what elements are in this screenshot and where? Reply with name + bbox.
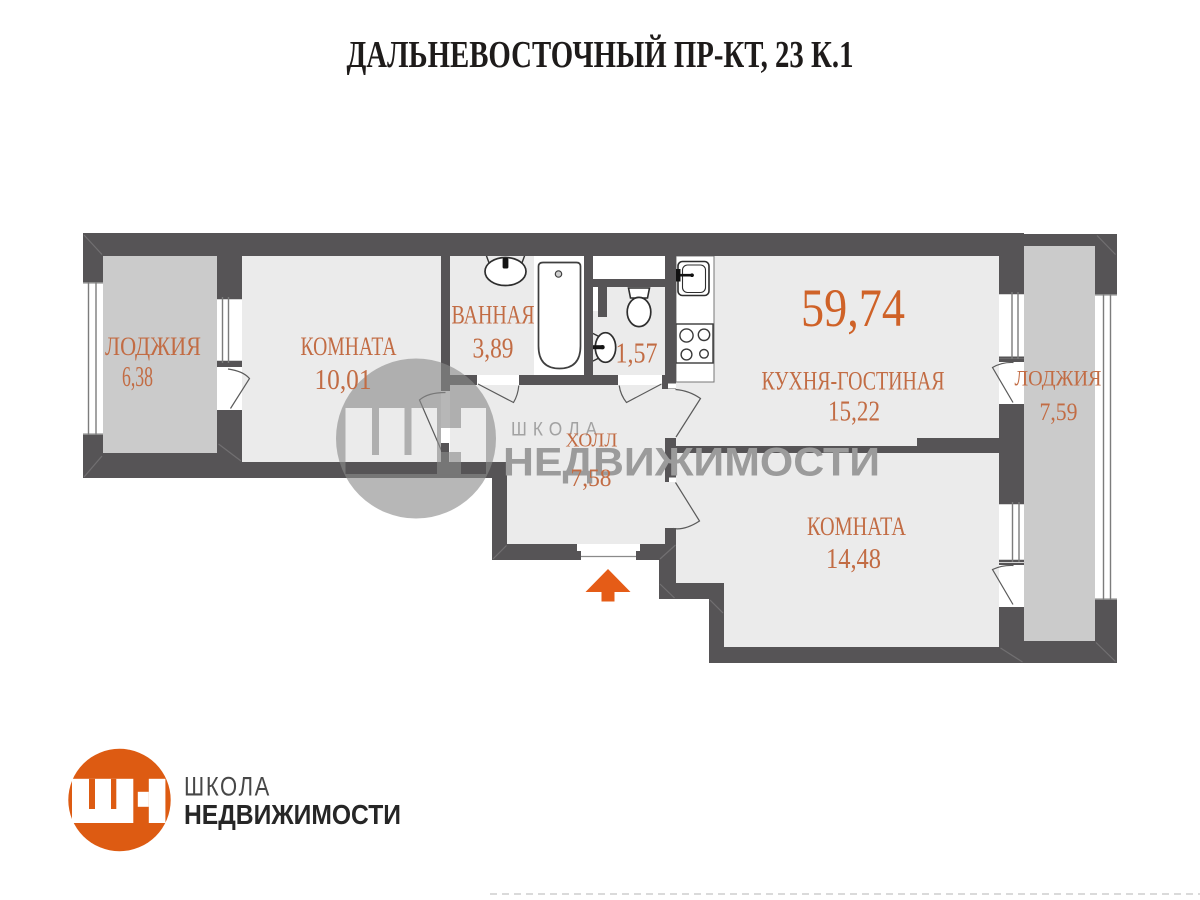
svg-text:КОМНАТА: КОМНАТА — [807, 512, 906, 541]
svg-text:КОМНАТА: КОМНАТА — [301, 332, 397, 361]
svg-text:НЕДВИЖИМОСТИ: НЕДВИЖИМОСТИ — [184, 799, 401, 830]
svg-text:59,74: 59,74 — [801, 278, 905, 338]
svg-text:КУХНЯ-ГОСТИНАЯ: КУХНЯ-ГОСТИНАЯ — [762, 367, 945, 396]
svg-text:10,01: 10,01 — [315, 365, 372, 396]
svg-text:14,48: 14,48 — [826, 544, 881, 575]
svg-text:НЕДВИЖИМОСТИ: НЕДВИЖИМОСТИ — [503, 441, 880, 485]
svg-text:15,22: 15,22 — [828, 397, 880, 428]
svg-text:6,38: 6,38 — [122, 362, 153, 393]
svg-text:ЛОДЖИЯ: ЛОДЖИЯ — [1015, 366, 1102, 391]
svg-text:3,89: 3,89 — [473, 334, 514, 365]
svg-text:7,58: 7,58 — [571, 465, 612, 492]
svg-text:ЛОДЖИЯ: ЛОДЖИЯ — [105, 332, 201, 361]
svg-text:1,57: 1,57 — [616, 339, 658, 370]
svg-text:ШКОЛА: ШКОЛА — [184, 772, 271, 802]
svg-text:ХОЛЛ: ХОЛЛ — [566, 430, 618, 452]
svg-text:7,59: 7,59 — [1040, 399, 1078, 426]
svg-text:ВАННАЯ: ВАННАЯ — [452, 301, 535, 330]
svg-text:ДАЛЬНЕВОСТОЧНЫЙ ПР-КТ, 23 К.1: ДАЛЬНЕВОСТОЧНЫЙ ПР-КТ, 23 К.1 — [347, 34, 854, 76]
